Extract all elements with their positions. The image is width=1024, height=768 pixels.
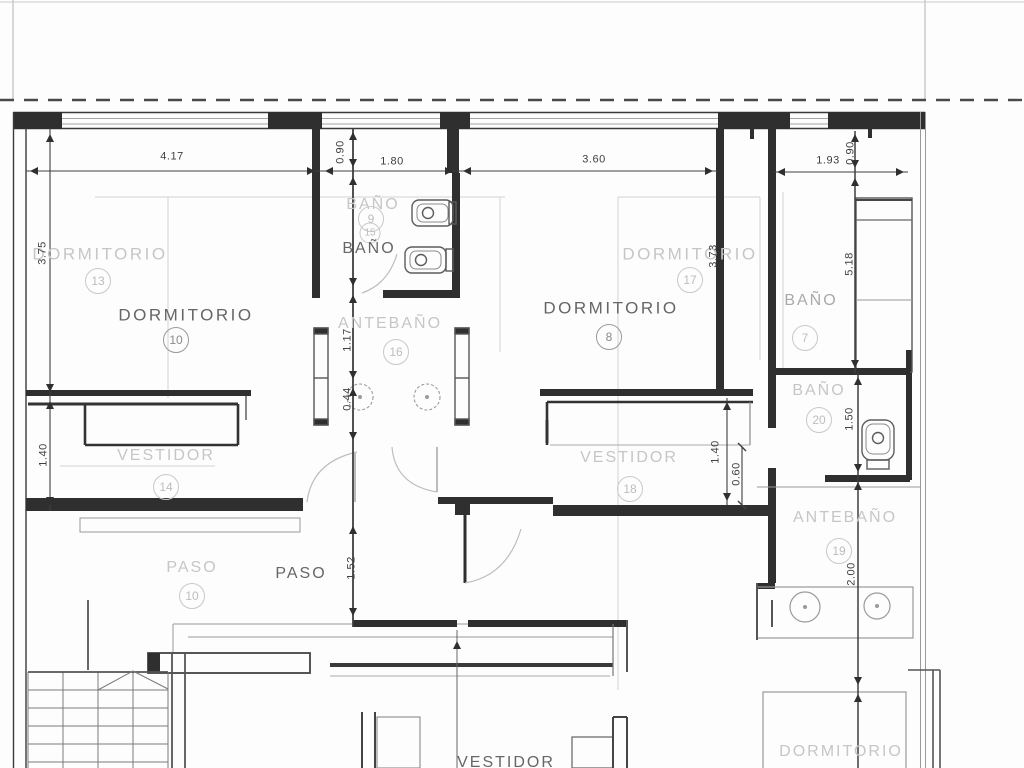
margin-lines [0,0,1024,100]
room-label-vestidor-14: VESTIDOR [117,448,215,464]
room-number-dormitorio-13: 13 [85,268,111,294]
bathroom-door-arc [362,254,397,293]
room-number-dormitorio-17: 17 [677,267,703,293]
bano7-cabinet [856,198,912,372]
room-number-bano-20: 20 [806,407,832,433]
dim-0-60: 0.60 [732,462,743,485]
dim-0-44: 0.44 [343,387,354,410]
right-exterior-wall [906,112,940,768]
room-label-paso: PASO [275,566,326,582]
dim-1-50: 1.50 [845,407,856,430]
room-number-paso-10: 10 [179,583,205,609]
door-arcs [307,447,521,583]
room-number-vestidor-18: 18 [617,476,643,502]
room-number-antebano-19: 19 [826,538,852,564]
room-number-dormitorio-8: 8 [596,324,622,350]
toilet-icon [412,200,456,226]
room-label-antebano-16: ANTEBAÑO [338,316,442,332]
sink-icons-antebano16 [347,384,440,410]
toilet-icon-bano20 [862,420,894,469]
room-label-dormitorio-bottom: DORMITORIO [779,744,903,760]
antebano19-counter [757,583,913,768]
room-label-bano-7: BAÑO [784,293,837,309]
dim-1-93: 1.93 [816,156,839,167]
room-label-dormitorio-10: DORMITORIO [118,307,253,324]
dim-0-90-right: 0.90 [846,141,857,164]
dim-3-75: 3.75 [38,241,49,264]
room-number-antebano-16: 16 [383,339,409,365]
dim-3-60: 3.60 [582,155,605,166]
paso-lower-walls [148,497,627,676]
dim-1-80: 1.80 [380,157,403,168]
room-label-dormitorio-8: DORMITORIO [543,300,678,317]
bidet-icon [405,247,453,273]
dim-4-17: 4.17 [160,152,183,163]
dim-1-40-right: 1.40 [711,440,722,463]
floor-plan-drawing [0,0,1024,768]
room-label-vestidor-bottom: VESTIDOR [457,755,555,768]
room-label-paso-10: PASO [166,560,217,576]
room-number-dormitorio-10: 10 [163,327,189,353]
wall-piers [13,112,925,139]
left-exterior-wall [14,112,27,768]
dim-3-73: 3.73 [709,244,720,267]
room-label-vestidor-18: VESTIDOR [580,450,678,466]
dim-1-52: 1.52 [347,556,358,579]
staircase [28,600,185,768]
room-number-bano-7: 7 [792,325,818,351]
room-label-bano-20: BAÑO [792,383,845,399]
floor-plan-canvas: DORMITORIO 13 DORMITORIO 10 BAÑO 9 15 BA… [0,0,1024,768]
room-label-dormitorio-17: DORMITORIO [622,246,757,263]
top-exterior-wall [13,112,925,139]
dim-2-00: 2.00 [847,562,858,585]
room-label-dormitorio-13: DORMITORIO [32,246,167,263]
room-label-antebano-19: ANTEBAÑO [793,510,897,526]
room-number-vestidor-14: 14 [153,474,179,500]
dim-0-90-bath: 0.90 [336,140,347,163]
room-label-bano-central: BAÑO [342,241,395,257]
dim-1-40-left: 1.40 [39,443,50,466]
underlay-plan-lines [60,192,783,690]
dim-5-18: 5.18 [845,252,856,275]
dim-1-17: 1.17 [343,328,354,351]
